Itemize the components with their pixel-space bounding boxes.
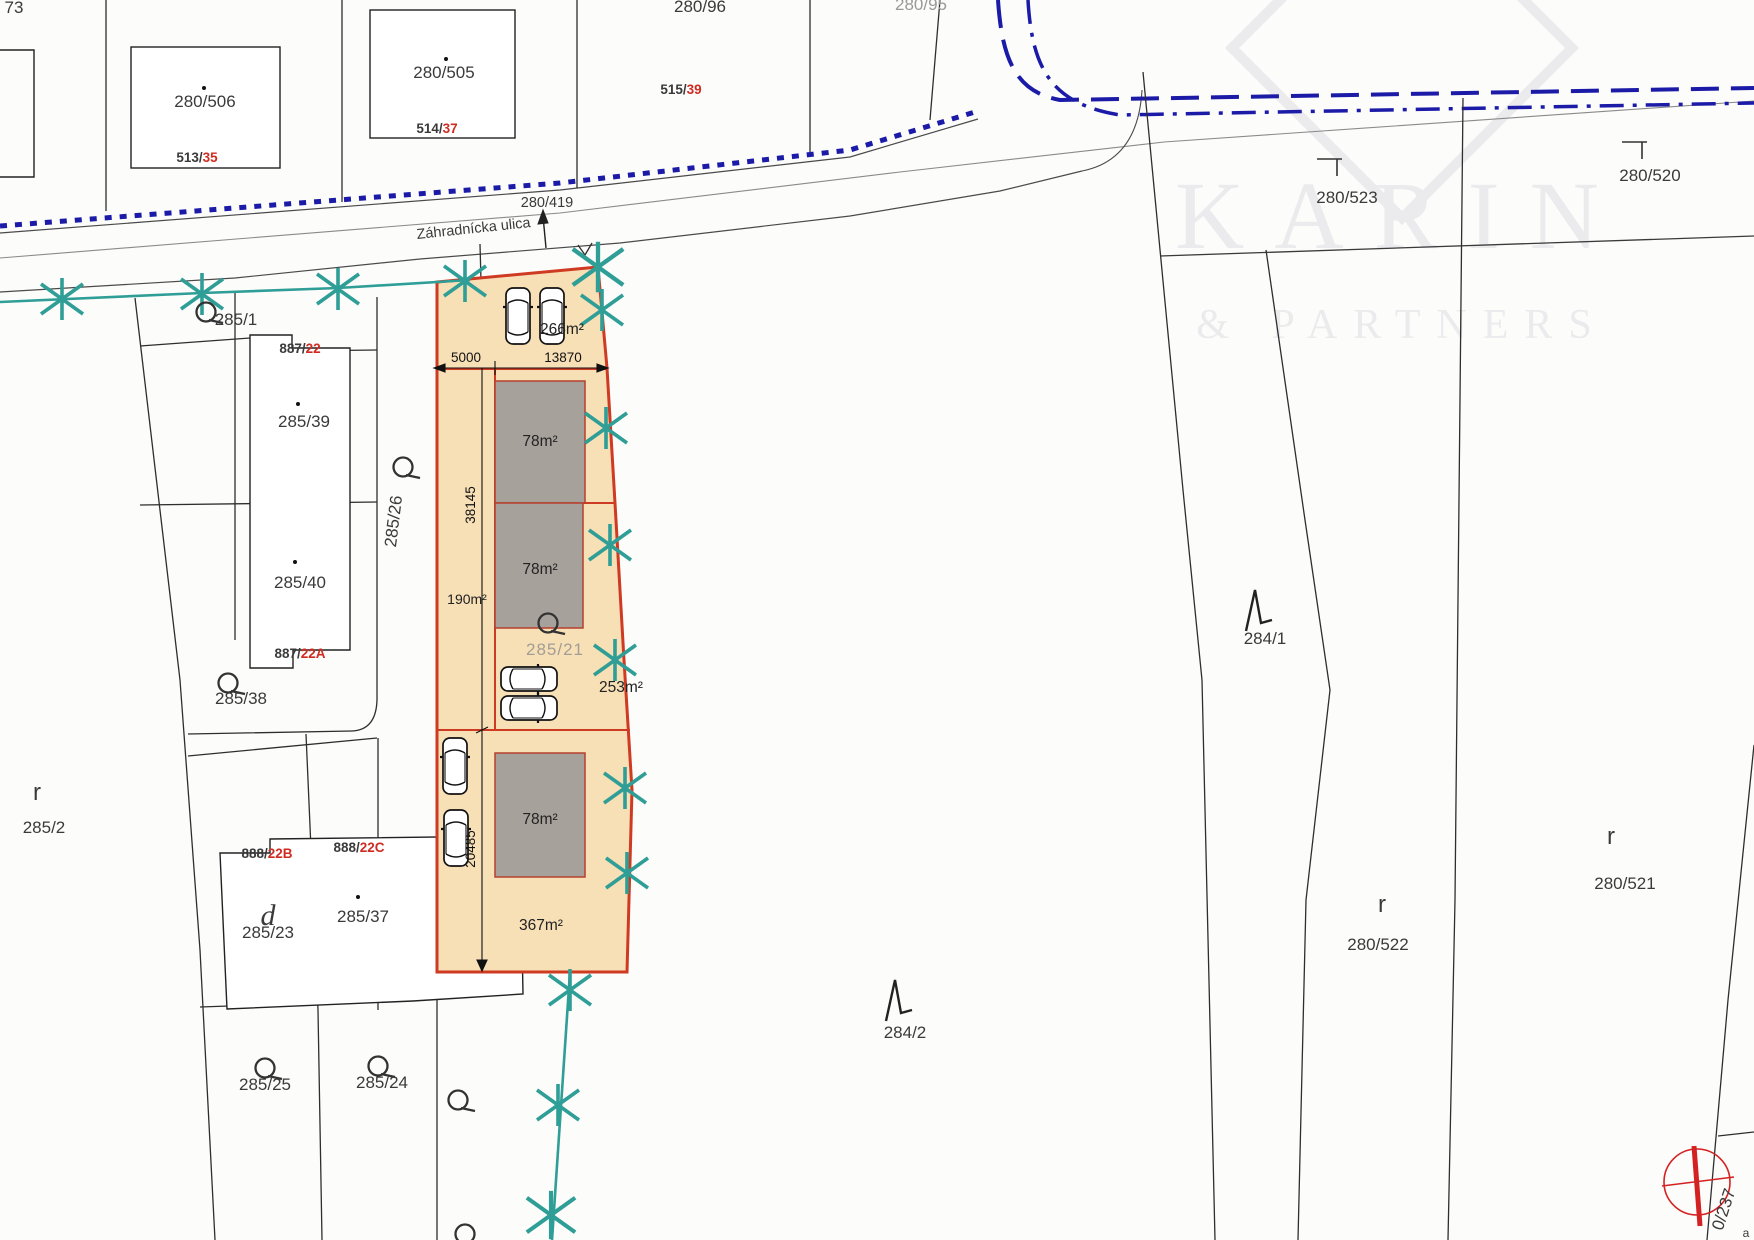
- building-label: 887/22A: [274, 646, 325, 661]
- symbol-r: r: [33, 779, 41, 806]
- boundary-tick-icon: [1622, 142, 1647, 159]
- area-label: 190m²: [447, 591, 487, 607]
- parcel-label: 285/26: [381, 494, 406, 548]
- car-icon: [503, 288, 533, 344]
- area-label: 253m²: [599, 679, 643, 696]
- parcel-label: 280/523: [1316, 188, 1377, 207]
- centroid-dot: [202, 86, 206, 90]
- cadastral-map: KARIN & PARTNERS: [0, 0, 1754, 1240]
- dimension-label: 5000: [451, 350, 481, 365]
- parcel-label: 285/38: [215, 689, 267, 708]
- street-name: Záhradnícka ulica: [416, 215, 532, 243]
- area-label: 78m²: [522, 433, 557, 450]
- parcel-label: 285/40: [274, 573, 326, 592]
- parcel-label: 285/37: [337, 907, 389, 926]
- building-partial-topleft: [0, 50, 34, 177]
- building-label: 513/35: [176, 150, 218, 165]
- parcel-label: 280/520: [1619, 166, 1680, 185]
- tree-mark-icon: [549, 969, 591, 1011]
- map-canvas: KARIN & PARTNERS: [0, 0, 1754, 1240]
- symbol-a: a: [1743, 1226, 1750, 1240]
- parcel-label: 285/39: [278, 412, 330, 431]
- symbol-r: r: [1378, 891, 1386, 918]
- building-887-22: [250, 335, 350, 668]
- parcel-label: 280/522: [1347, 935, 1408, 954]
- building-label: 888/22C: [333, 840, 384, 855]
- car-icon: [440, 738, 470, 794]
- land-use-icon: [1246, 590, 1272, 631]
- parcel-label: 280/506: [174, 92, 235, 111]
- well-icon: [449, 1091, 476, 1112]
- area-label: 78m²: [522, 811, 557, 828]
- parcel-label: 284/2: [884, 1023, 927, 1042]
- symbol-r: r: [1607, 823, 1615, 850]
- building-label: 515/39: [660, 82, 701, 97]
- centroid-dot: [356, 895, 360, 899]
- parcel-label: 285/1: [215, 310, 258, 329]
- dimension-label: 13870: [544, 350, 582, 365]
- centroid-dot: [444, 57, 448, 61]
- parcel-label: 284/1: [1244, 629, 1287, 648]
- tree-mark-icon: [527, 1191, 575, 1239]
- dimension-label: 38145: [463, 486, 478, 524]
- parcel-label-gray: 285/21: [526, 640, 584, 659]
- centroid-dot: [293, 560, 297, 564]
- parcel-label: 285/24: [356, 1073, 408, 1092]
- parcel-label: 285/2: [23, 818, 66, 837]
- building-label: 887/22: [279, 341, 320, 356]
- well-icon: [394, 458, 421, 479]
- area-label: 367m²: [519, 917, 563, 934]
- watermark-logo: KARIN & PARTNERS: [1175, 0, 1629, 348]
- area-label: 266m²: [540, 321, 584, 338]
- road-parcel-label: 280/419: [521, 195, 573, 211]
- building-label: 888/22B: [241, 846, 292, 861]
- parcel-label: 73: [5, 0, 24, 17]
- centroid-dot: [296, 402, 300, 406]
- parcel-label: 285/25: [239, 1075, 291, 1094]
- car-icon: [501, 664, 557, 694]
- building-label: 514/37: [416, 121, 457, 136]
- parcel-label: 280/521: [1594, 874, 1655, 893]
- parcel-label: 285/23: [242, 923, 294, 942]
- dimension-label: 20485: [463, 830, 478, 868]
- parcel-label: 280/505: [413, 63, 474, 82]
- area-label: 78m²: [522, 561, 557, 578]
- well-icon: [456, 1225, 483, 1240]
- tree-mark-icon: [537, 1084, 579, 1126]
- parcel-label: 280/96: [674, 0, 726, 16]
- watermark-line2: & PARTNERS: [1196, 302, 1608, 348]
- parcel-label: 280/95: [895, 0, 947, 14]
- land-use-icon: [886, 980, 912, 1021]
- road-arrow-icon: [538, 210, 548, 248]
- car-icon: [501, 693, 557, 723]
- blue-dashed-line: [998, 0, 1754, 100]
- parcel-label: 0/237: [1708, 1186, 1739, 1232]
